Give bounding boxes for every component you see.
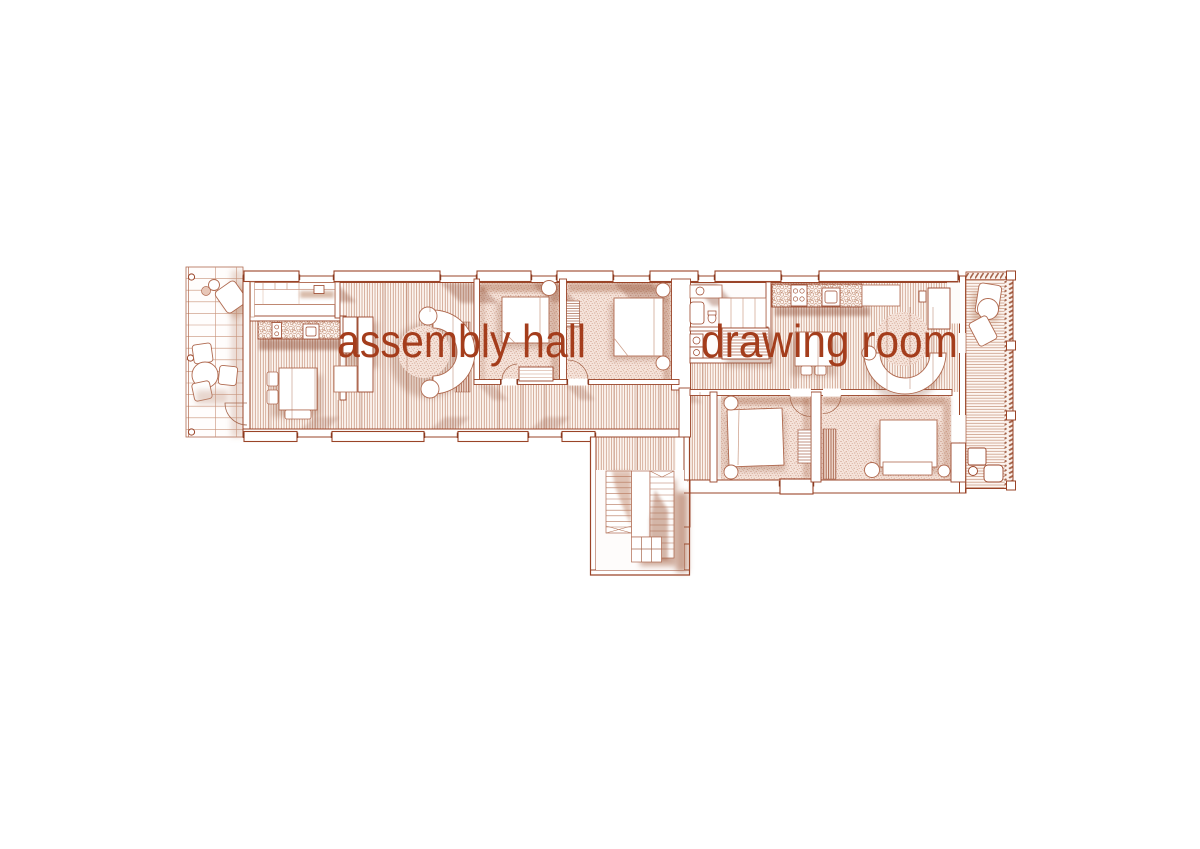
- svg-text:drawing room: drawing room: [701, 315, 958, 367]
- svg-text:assembly hall: assembly hall: [337, 315, 586, 367]
